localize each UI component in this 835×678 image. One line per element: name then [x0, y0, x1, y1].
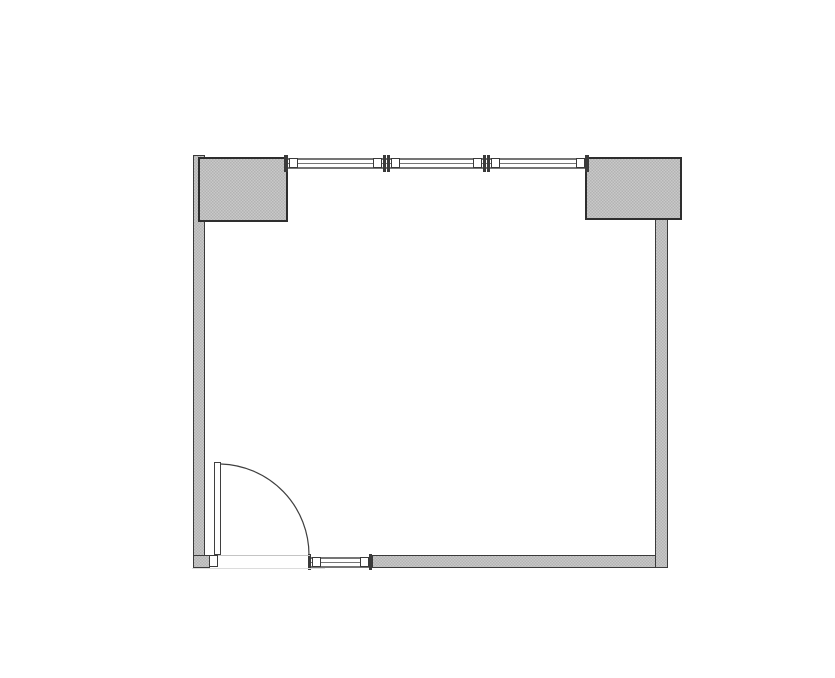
- bottom-window-right-end-square: [360, 557, 369, 567]
- top-window-band: [288, 158, 585, 169]
- top-window-right-end-bar: [585, 155, 589, 172]
- top-window-mullion-1-left-square: [373, 158, 382, 168]
- door-threshold-lower: [192, 568, 325, 569]
- door-swing-arc-path: [221, 464, 309, 555]
- top-window-mullion-1-bar-a: [383, 155, 386, 172]
- top-window-right-end-square: [576, 158, 585, 168]
- floor-plan: [0, 0, 835, 678]
- top-left-column: [198, 157, 288, 222]
- top-window-mullion-2-left-square: [473, 158, 482, 168]
- door-leaf: [214, 462, 221, 555]
- top-window-mullion-1-bar-b: [387, 155, 390, 172]
- top-window-left-end-bar: [284, 155, 288, 172]
- bottom-window-right-end-bar: [369, 554, 372, 570]
- bottom-left-wall-stub: [193, 555, 210, 568]
- top-window-mullion-1-right-square: [391, 158, 400, 168]
- top-window-left-end-square: [289, 158, 298, 168]
- door-swing-arc: [0, 0, 835, 678]
- bottom-wall: [372, 555, 668, 568]
- door-threshold-upper: [218, 555, 310, 556]
- door-jamb: [209, 555, 218, 567]
- right-wall: [655, 219, 668, 568]
- top-window-mullion-2-right-square: [491, 158, 500, 168]
- top-right-column: [585, 157, 682, 220]
- bottom-window-left-end-square: [312, 557, 321, 567]
- top-window-mullion-2-bar-a: [483, 155, 486, 172]
- top-window-mullion-2-bar-b: [487, 155, 490, 172]
